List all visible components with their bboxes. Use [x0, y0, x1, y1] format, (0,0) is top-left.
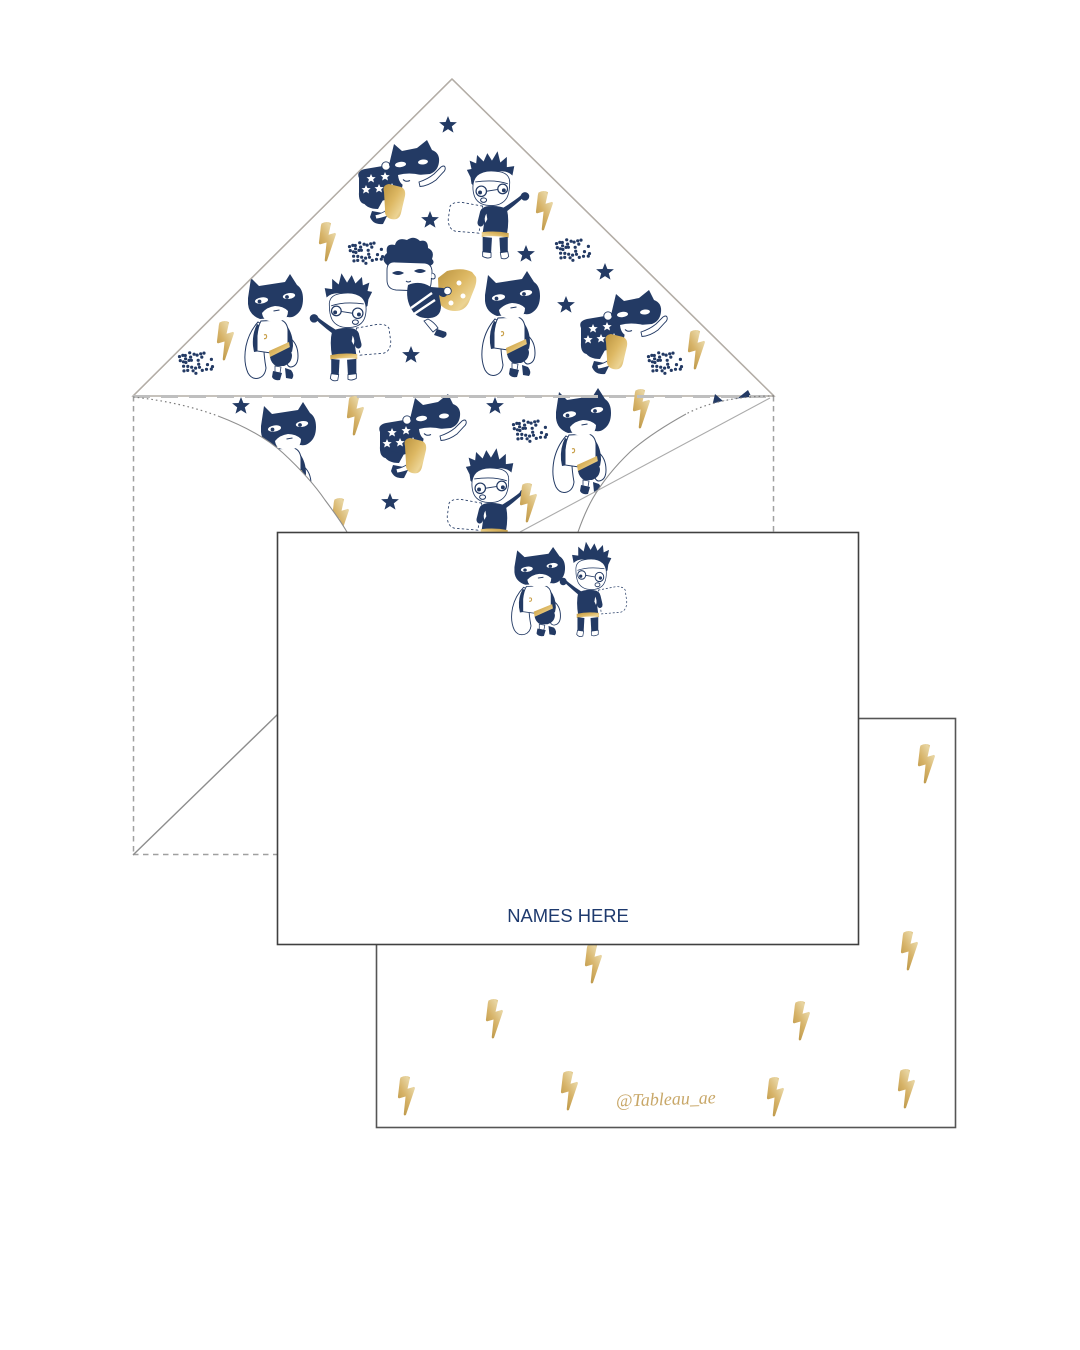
svg-text:NAMES HERE: NAMES HERE — [507, 905, 629, 926]
svg-text:@Tableau_ae: @Tableau_ae — [616, 1087, 717, 1110]
